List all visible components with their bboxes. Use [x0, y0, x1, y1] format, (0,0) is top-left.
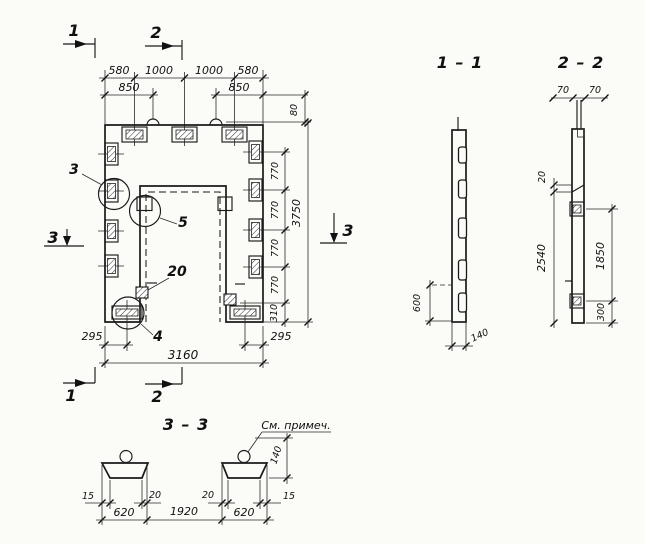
lifting-loop	[147, 119, 159, 125]
dim-label: 1000	[195, 64, 223, 77]
dim-label: 20	[202, 490, 214, 501]
dim-label: 1850	[594, 242, 607, 270]
section-mark-label: 3	[342, 221, 353, 240]
embed-plates-right	[240, 141, 290, 303]
dim-label: 20	[537, 171, 548, 183]
section-mark-1-top: 1	[63, 21, 95, 58]
dim-label: 295	[82, 330, 103, 343]
section-mark-label: 2	[150, 23, 161, 42]
dim-label: 620	[114, 506, 135, 519]
dim-label: 850	[229, 81, 250, 94]
section-mark-label: 1	[68, 21, 79, 40]
dim-label: 295	[271, 330, 292, 343]
callout-label: 4	[152, 329, 163, 345]
section-1-1: 1 – 1 600 140	[412, 53, 490, 351]
rib-right	[222, 451, 267, 479]
dim-label: 770	[270, 162, 281, 180]
callout-5: 5	[130, 196, 189, 232]
dim-label: 620	[234, 506, 255, 519]
dim-label: 140	[269, 445, 285, 466]
section-title: 2 – 2	[558, 53, 604, 72]
section-2-2: 2 – 2 70 70 20 2540 1850 300	[535, 53, 618, 328]
corner-notch	[578, 129, 585, 137]
section-mark-label: 2	[151, 387, 162, 406]
plan-view: 1 2 580 1000 1000 580 850 850	[44, 21, 354, 406]
callout-label: 3	[69, 162, 79, 178]
lifting-loop	[210, 119, 222, 125]
small-embed-left	[136, 287, 148, 298]
dim-label: 20	[149, 490, 161, 501]
dim-row-bottom: 295 295 3160	[82, 326, 292, 368]
dim-row-bottom: 620 1920 620	[96, 505, 274, 524]
section-mark-2-top: 2	[145, 23, 182, 60]
dim-140: 140	[445, 323, 490, 351]
section-mark-1-bottom: 1	[63, 367, 95, 405]
dim-label: 580	[109, 64, 130, 77]
dim-label: 850	[119, 81, 140, 94]
dim-label: 70	[557, 85, 569, 96]
dim-label: 3160	[168, 348, 199, 362]
drawing-canvas: 1 2 580 1000 1000 580 850 850	[0, 0, 645, 544]
dim-col-right: 770 770 770 770 310 3750	[264, 118, 313, 328]
foot-plate-right	[230, 300, 260, 351]
callout-20: 20	[148, 264, 187, 290]
dim-label: 70	[589, 85, 601, 96]
dim-label: 3750	[290, 199, 303, 227]
dim-col-right: 1850 300	[586, 204, 618, 328]
panel-hidden-edges	[146, 192, 220, 322]
dim-label: 1920	[170, 505, 198, 518]
dim-label: 15	[82, 491, 94, 502]
section-mark-2-bottom: 2	[145, 367, 182, 406]
dim-col-left: 20 2540	[535, 171, 572, 328]
section-mark-label: 1	[65, 386, 76, 405]
dim-label: 600	[412, 294, 423, 312]
section-mark-label: 3	[47, 228, 58, 247]
technical-drawing: 1 2 580 1000 1000 580 850 850	[0, 0, 645, 544]
callout-label: 5	[178, 215, 188, 231]
dim-label: 300	[596, 303, 607, 321]
callout-4: 4	[112, 297, 163, 345]
section-mark-3-right: 3	[320, 213, 354, 243]
dim-label: 140	[469, 327, 490, 345]
section-mark-3-left: 3	[44, 228, 84, 247]
dim-600: 600	[412, 280, 452, 326]
note-text: См. примеч.	[261, 419, 330, 432]
section-title: 3 – 3	[163, 415, 209, 434]
dim-label: 1000	[145, 64, 173, 77]
dim-label: 80	[289, 104, 300, 116]
small-embed-right	[224, 294, 236, 305]
dim-label: 770	[270, 239, 281, 257]
dim-loop-height: 80	[226, 90, 311, 127]
dim-70-70: 70 70	[550, 85, 609, 129]
embed-plates-left	[98, 143, 124, 277]
dim-label: 580	[238, 64, 259, 77]
dim-label: 770	[270, 276, 281, 294]
rib-left	[102, 451, 148, 479]
section-3-3: 3 – 3 См. примеч. 140 15	[82, 415, 331, 525]
callout-3: 3	[69, 162, 129, 210]
dim-label: 310	[269, 304, 280, 322]
kink-line	[572, 185, 584, 192]
dim-label: 2540	[535, 244, 548, 272]
section-title: 1 – 1	[437, 53, 483, 72]
dim-label: 770	[270, 201, 281, 219]
callout-label: 20	[167, 264, 187, 280]
dim-label: 15	[283, 491, 295, 502]
